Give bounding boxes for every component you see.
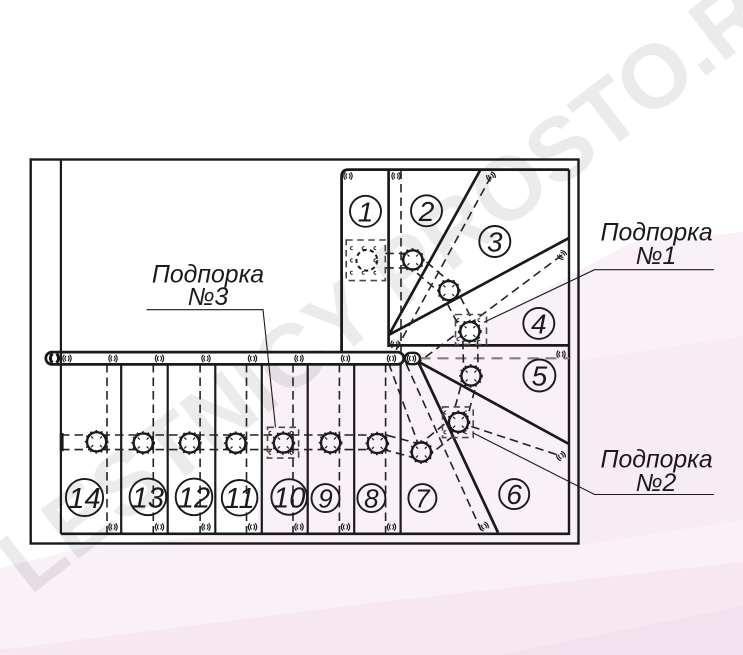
svg-text:10: 10	[273, 482, 305, 514]
svg-text:9: 9	[318, 484, 332, 514]
svg-text:3: 3	[487, 227, 503, 258]
svg-text:4: 4	[531, 309, 547, 340]
svg-text:1: 1	[358, 196, 374, 227]
svg-text:2: 2	[418, 196, 435, 227]
svg-text:6: 6	[506, 479, 522, 510]
svg-text:№1: №1	[636, 243, 677, 270]
svg-text:8: 8	[364, 484, 379, 514]
svg-text:№3: №3	[188, 284, 229, 311]
svg-text:№2: №2	[636, 470, 677, 497]
svg-text:7: 7	[415, 484, 431, 514]
svg-text:13: 13	[132, 482, 164, 514]
svg-text:11: 11	[225, 483, 255, 515]
svg-text:5: 5	[532, 361, 548, 392]
svg-text:14: 14	[68, 483, 100, 515]
svg-text:12: 12	[178, 482, 210, 514]
